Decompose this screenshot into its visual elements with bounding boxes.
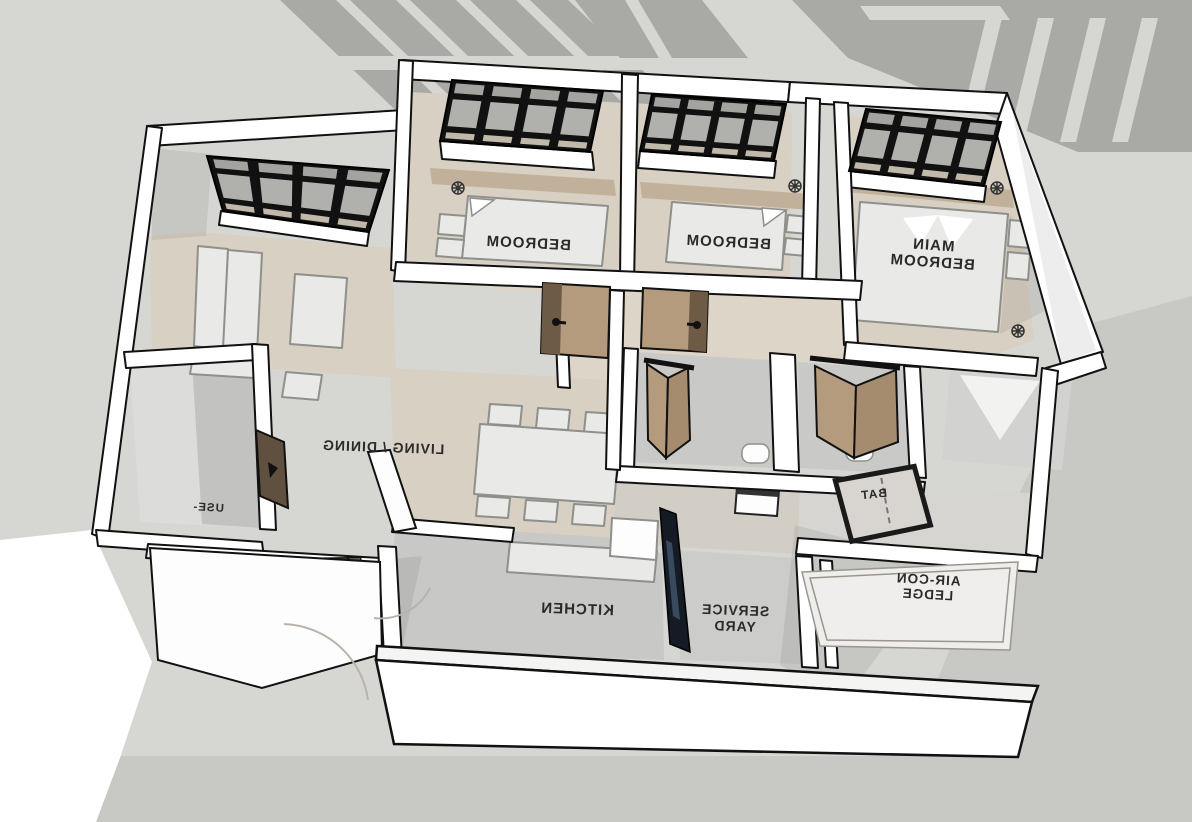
bifold-panel <box>854 370 898 458</box>
ground-strip-bottom <box>96 756 1192 822</box>
label-shelter: USE- <box>192 501 224 515</box>
bedside-shelf <box>436 238 464 258</box>
window-pane <box>647 112 678 139</box>
wall-bath-divider <box>770 353 799 472</box>
aircon-symbol <box>789 180 801 192</box>
door-handle-lever <box>687 324 697 325</box>
label-service-line1: SERVICE <box>701 601 770 619</box>
window-pane <box>454 83 485 95</box>
label-aircon-ledge: AIR-CON LEDGE <box>895 570 961 603</box>
shadow-living <box>152 148 212 240</box>
wall-bed2-right <box>802 98 820 290</box>
window-pane <box>748 120 779 147</box>
window-pane <box>560 108 594 137</box>
floorplan-svg: BEDROOM BEDROOM MAIN BEDROOM LIVING / DI… <box>0 0 1192 822</box>
window-pane <box>523 105 557 134</box>
label-kitchen: KITCHEN <box>540 600 614 620</box>
chair <box>524 500 558 522</box>
window-pane <box>654 97 681 108</box>
wall-bed1-bed2 <box>620 74 638 284</box>
toilet-bath-1 <box>742 444 769 463</box>
window-pane <box>567 92 598 104</box>
window-pane <box>721 102 748 113</box>
window-pane <box>485 102 519 131</box>
window-pane <box>681 115 712 142</box>
window-pane <box>687 100 714 111</box>
label-aircon-line2: LEDGE <box>901 586 953 604</box>
door-handle-lever <box>556 322 566 323</box>
label-service-line2: YARD <box>713 617 756 634</box>
window-pane <box>529 89 560 101</box>
aircon-symbol <box>1012 325 1024 337</box>
label-bath: BAT <box>860 486 888 503</box>
door-bedroom-1 <box>541 283 610 358</box>
sofa-seat <box>223 250 262 353</box>
floorplan-render: BEDROOM BEDROOM MAIN BEDROOM LIVING / DI… <box>0 0 1192 822</box>
window-pane <box>301 182 335 212</box>
door-shelter <box>256 430 288 508</box>
window-pane <box>714 117 745 144</box>
window-bedroom-1 <box>440 80 603 152</box>
aircon-symbol <box>452 182 464 194</box>
aircon-symbol <box>991 182 1003 194</box>
dining-table <box>474 424 620 504</box>
chair <box>536 408 570 430</box>
chair <box>476 496 510 518</box>
chair <box>488 404 522 426</box>
bedside-table <box>1006 252 1030 280</box>
door-leaf-edge <box>541 283 562 355</box>
window-pane <box>754 105 781 116</box>
window-bedroom-2 <box>640 94 786 161</box>
window-pane <box>492 86 523 98</box>
chair <box>572 504 606 526</box>
window-pane <box>448 99 482 128</box>
shadow-slit-horizontal <box>860 6 1010 20</box>
side-chair <box>282 372 322 400</box>
bedside-shelf <box>438 214 466 236</box>
fridge <box>610 518 658 560</box>
coffee-table <box>290 274 347 348</box>
window-main-bedroom <box>849 109 1001 186</box>
window-pane <box>260 178 293 207</box>
door-bedroom-2 <box>641 288 708 352</box>
